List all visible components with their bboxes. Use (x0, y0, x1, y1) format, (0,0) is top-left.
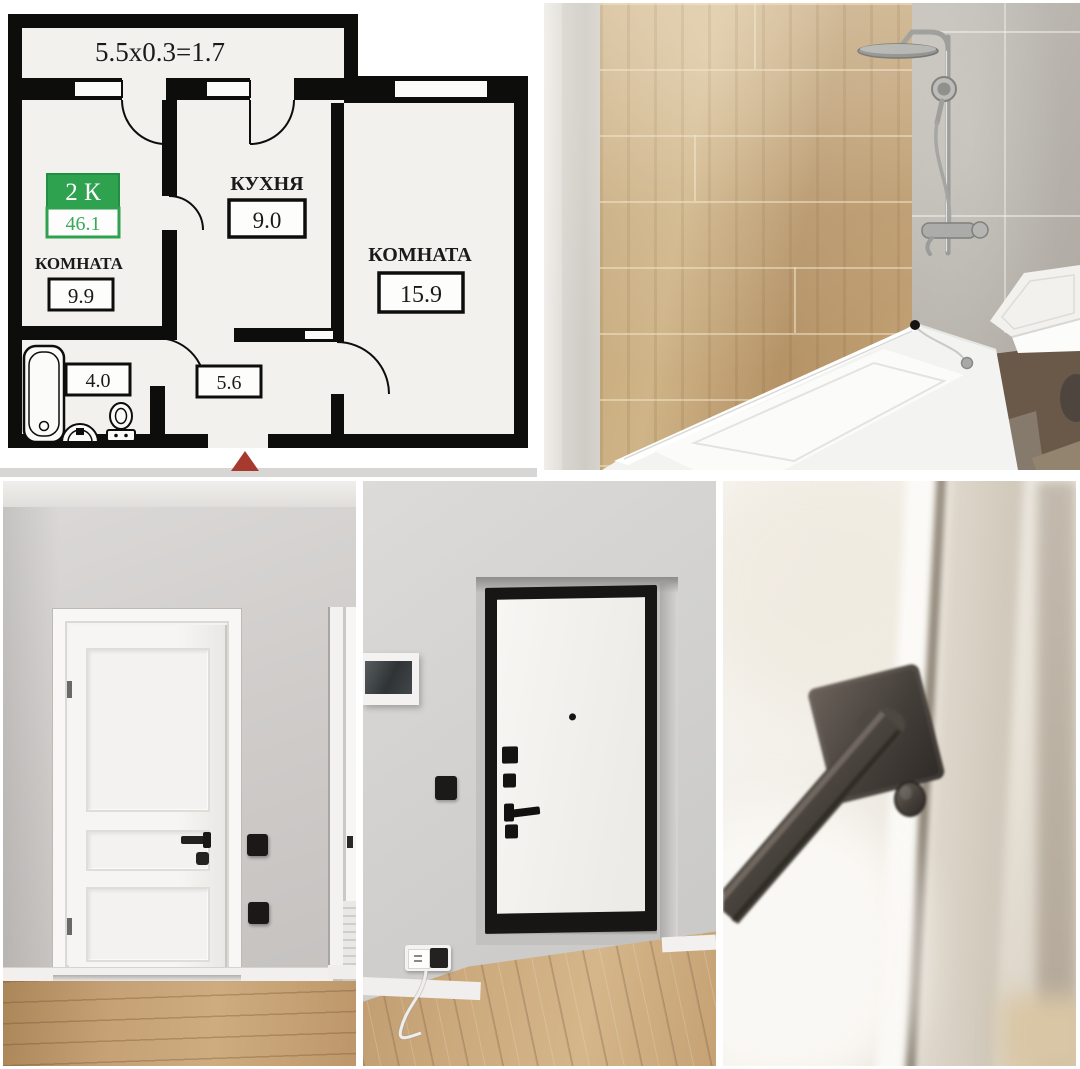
floor-plan-panel[interactable]: 5.5x0.3=1.7 2 К 46.1 КОМНАТА 9.9 КУХНЯ 9… (0, 0, 537, 477)
badge-type-label: 2 К (65, 179, 101, 206)
hallway-area: 5.6 (217, 372, 242, 394)
toilet-icon (107, 403, 135, 441)
shower-column (858, 32, 988, 254)
room-label-bedroom-2: КОМНАТА 15.9 (368, 244, 472, 312)
baseboard (328, 965, 356, 979)
washbasin (990, 265, 1080, 353)
bathroom-area: 4.0 (86, 370, 111, 392)
door-panel-top (86, 648, 210, 812)
kitchen-area: 9.0 (253, 208, 282, 233)
door-panel-bottom (86, 887, 210, 962)
light-switch[interactable] (248, 902, 269, 924)
door-shadow (53, 975, 241, 982)
room1-name: КОМНАТА (35, 254, 124, 273)
room-label-hallway: 5.6 (197, 366, 261, 397)
door-lock-knob[interactable] (196, 852, 209, 865)
room1-area: 9.9 (68, 284, 94, 308)
bathroom-photo[interactable] (544, 3, 1080, 470)
bathtub-icon (24, 346, 64, 442)
light-switch[interactable] (247, 834, 268, 856)
adjacent-door-handle (347, 836, 353, 848)
room-label-kitchen: КУХНЯ 9.0 (229, 173, 305, 237)
entrance-door-photo[interactable] (363, 481, 716, 1066)
door-hinge (67, 918, 72, 935)
interior-door[interactable] (69, 625, 227, 979)
hallway-door-photo[interactable] (3, 481, 356, 1066)
badge-area-value: 46.1 (66, 213, 101, 235)
door-hinge (67, 681, 72, 698)
balcony-dimension-label: 5.5x0.3=1.7 (95, 37, 225, 67)
room2-area: 15.9 (400, 282, 442, 308)
black-door-handle[interactable] (723, 481, 1076, 1066)
floor-plan-drawing: 5.5x0.3=1.7 2 К 46.1 КОМНАТА 9.9 КУХНЯ 9… (0, 0, 537, 477)
door-handle-rosette (203, 832, 211, 848)
room-label-bedroom-1: КОМНАТА 9.9 (35, 254, 124, 310)
ceiling (3, 481, 356, 507)
bathroom-fixtures (544, 3, 1080, 470)
wood-floor (3, 981, 356, 1066)
entrance-arrow-icon (231, 451, 259, 471)
room-label-bathroom: 4.0 (66, 364, 130, 395)
door-handle-closeup-photo[interactable] (723, 481, 1076, 1066)
lock-thumbturn[interactable] (895, 782, 925, 816)
tub-plug (962, 358, 973, 369)
handle-lever (723, 707, 905, 924)
thumbturn-highlight (900, 786, 912, 800)
bathtub (602, 320, 1018, 470)
real-estate-photo-collage: 5.5x0.3=1.7 2 К 46.1 КОМНАТА 9.9 КУХНЯ 9… (0, 0, 1080, 1069)
kitchen-name: КУХНЯ (230, 173, 304, 195)
socket-cable (363, 481, 716, 1066)
room2-name: КОМНАТА (368, 244, 472, 266)
listing-badge: 2 К 46.1 (47, 174, 119, 237)
